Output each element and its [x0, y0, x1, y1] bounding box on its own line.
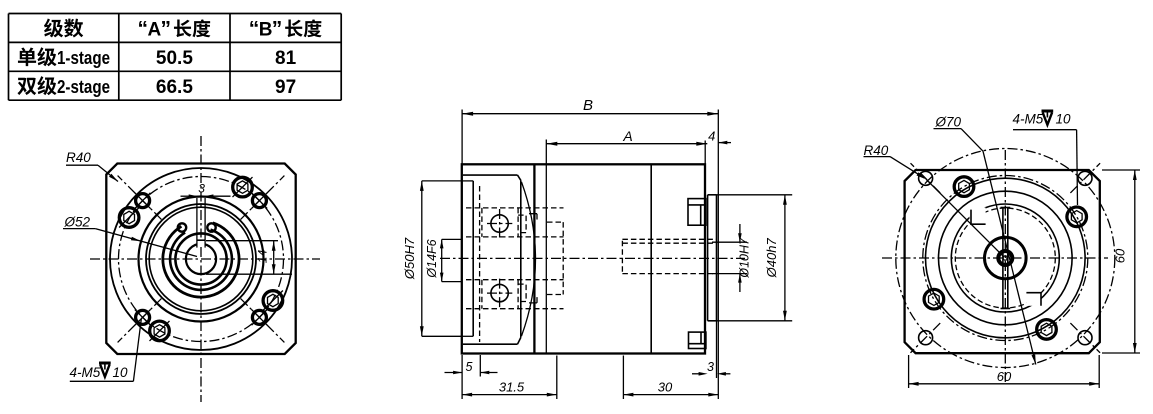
- svg-text:Ø14F6: Ø14F6: [425, 239, 439, 278]
- svg-text:2-stage: 2-stage: [57, 77, 110, 97]
- svg-text:R40: R40: [66, 150, 91, 165]
- svg-text:A: A: [148, 19, 162, 40]
- svg-text:31.5: 31.5: [499, 380, 525, 395]
- svg-text:Ø40h7: Ø40h7: [764, 238, 779, 279]
- svg-text:3: 3: [198, 181, 205, 195]
- svg-text:97: 97: [275, 77, 296, 98]
- svg-text:Ø70: Ø70: [935, 115, 962, 130]
- svg-text:”: ”: [272, 17, 283, 40]
- svg-text:30: 30: [658, 380, 673, 395]
- svg-text:60: 60: [997, 369, 1012, 384]
- svg-text:14: 14: [256, 250, 270, 264]
- svg-text:4-M5: 4-M5: [1013, 112, 1044, 127]
- svg-text:R40: R40: [864, 143, 889, 158]
- svg-text:4-M5: 4-M5: [70, 365, 101, 380]
- svg-text:Ø10H7: Ø10H7: [738, 237, 752, 279]
- svg-text:Ø50H7: Ø50H7: [402, 237, 417, 280]
- svg-text:66.5: 66.5: [156, 77, 193, 98]
- svg-text:5: 5: [466, 360, 473, 374]
- svg-text:“: “: [249, 17, 260, 40]
- svg-text:81: 81: [275, 48, 297, 69]
- svg-text:B: B: [259, 19, 273, 40]
- svg-text:Ø52: Ø52: [64, 215, 91, 230]
- svg-text:3: 3: [707, 360, 714, 374]
- svg-text:10: 10: [113, 365, 129, 380]
- svg-text:B: B: [583, 97, 593, 114]
- svg-text:A: A: [622, 128, 632, 144]
- svg-text:”: ”: [161, 17, 172, 40]
- svg-text:50.5: 50.5: [156, 48, 193, 69]
- svg-text:4: 4: [708, 129, 715, 144]
- svg-text:“: “: [138, 17, 149, 40]
- svg-text:60: 60: [1113, 248, 1128, 263]
- svg-text:1-stage: 1-stage: [57, 48, 110, 68]
- svg-text:10: 10: [1056, 112, 1072, 127]
